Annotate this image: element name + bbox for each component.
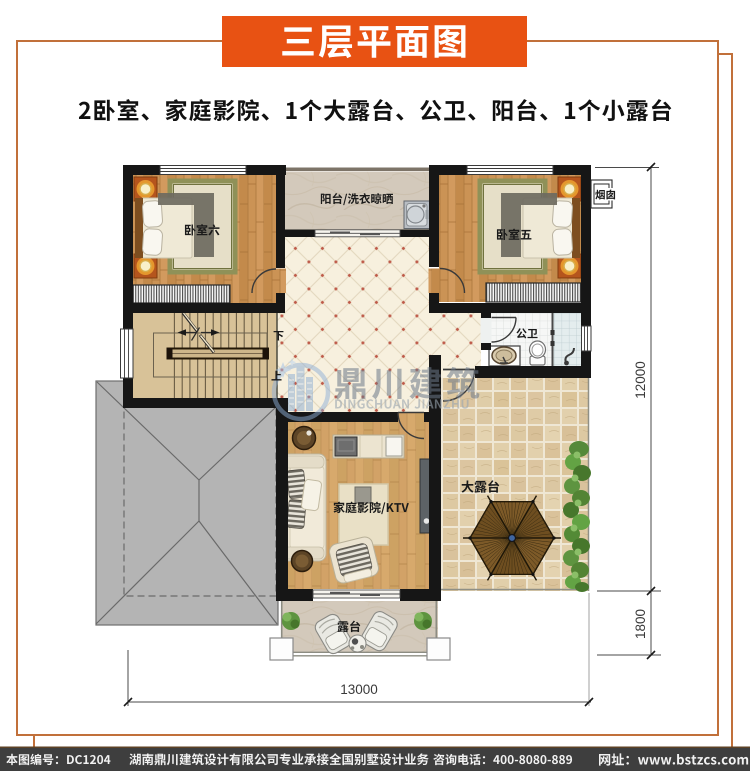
svg-text:1800: 1800 — [633, 609, 648, 639]
svg-text:13000: 13000 — [340, 682, 378, 697]
svg-text:12000: 12000 — [633, 361, 648, 399]
